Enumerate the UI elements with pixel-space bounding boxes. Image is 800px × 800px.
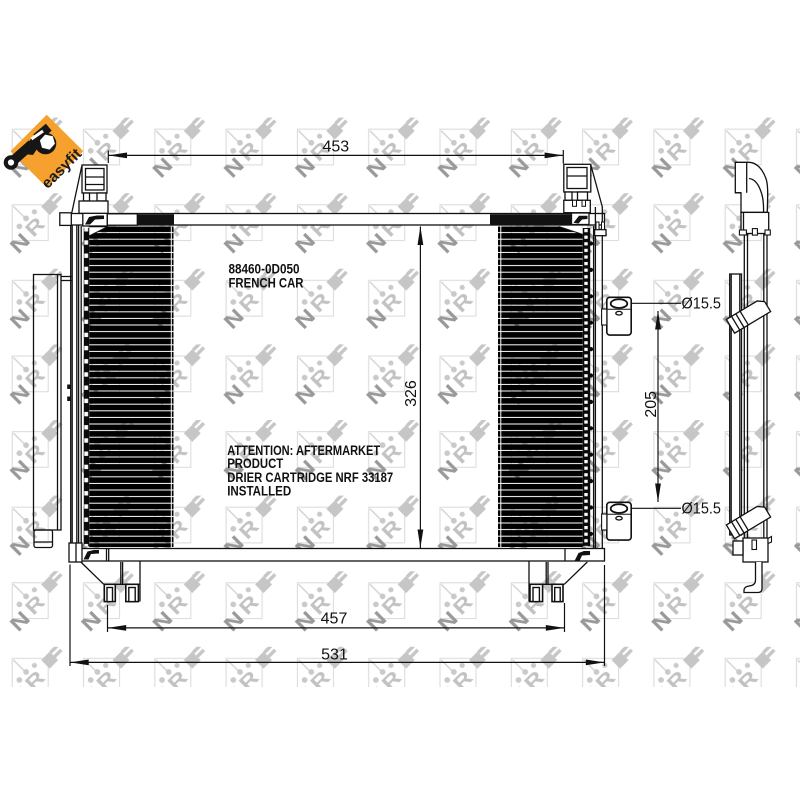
svg-text:453: 453 — [322, 139, 349, 156]
svg-text:Ø15.5: Ø15.5 — [682, 296, 722, 313]
svg-text:531: 531 — [321, 647, 348, 664]
svg-text:FRENCH CAR: FRENCH CAR — [229, 276, 304, 291]
svg-text:Ø15.5: Ø15.5 — [682, 501, 722, 518]
svg-text:326: 326 — [403, 380, 420, 407]
svg-text:205: 205 — [643, 391, 660, 418]
svg-text:457: 457 — [321, 611, 348, 628]
svg-text:INSTALLED: INSTALLED — [227, 483, 291, 498]
svg-text:88460-0D050: 88460-0D050 — [229, 262, 300, 277]
svg-text:PRODUCT: PRODUCT — [227, 456, 284, 471]
